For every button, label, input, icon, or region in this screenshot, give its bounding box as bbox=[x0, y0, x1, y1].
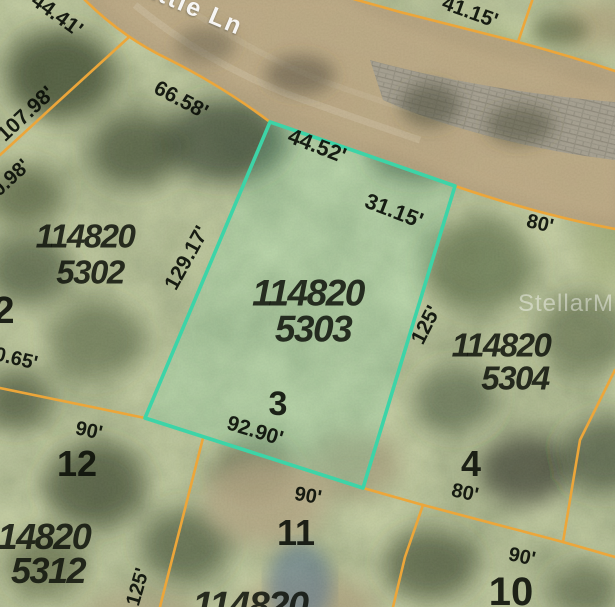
aerial-parcel-map[interactable]: attle Ln 44.41' 107.98' 0.98' 66.58' 41.… bbox=[0, 0, 615, 607]
aerial-basemap bbox=[0, 0, 615, 607]
